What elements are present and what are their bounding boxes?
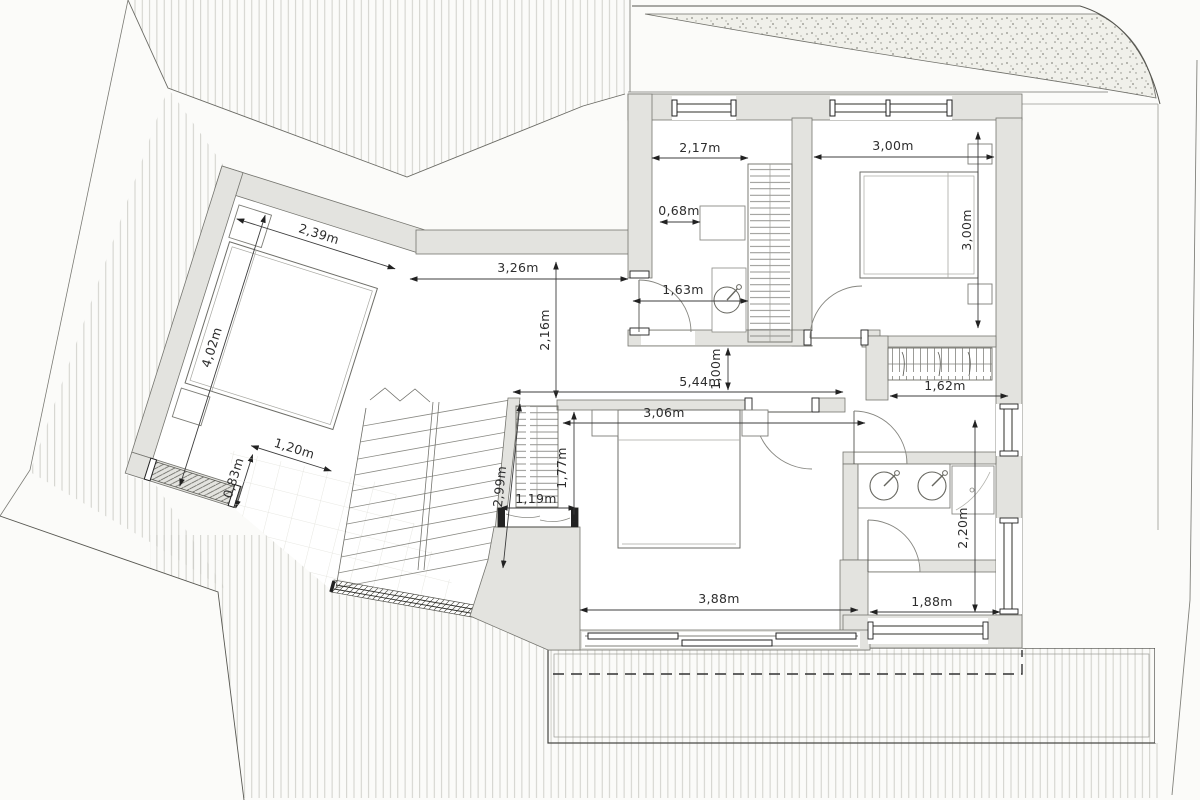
dimension-label: 3,00m [959,209,974,251]
dimension-label: 3,06m [643,405,685,420]
right-plot-lines [1022,104,1158,530]
terrace [548,648,1175,743]
right-boundary-line [1172,60,1197,795]
dimension-label: 2,20m [955,507,970,549]
bed-master-bedroom [618,410,740,548]
closet-small-bathroom [748,164,792,342]
closet-stair-landing [498,508,578,527]
window-east-1 [996,404,1022,456]
terrace-deck [548,648,1155,743]
gravel-bed [645,14,1156,98]
dimension-label: 3,00m [872,138,914,153]
dimension-label: 2,17m [679,140,721,155]
dimension-label: 2,16m [537,309,552,351]
shower [952,466,994,514]
window-north-1 [672,96,736,120]
nightstand [968,144,992,164]
nightstand [968,284,992,304]
dimension-label: 1,00m [708,348,723,390]
washbasin-small-bathroom [712,268,746,332]
dimension-label: 1,19m [515,491,557,506]
dimension-label: 3,26m [497,260,539,275]
wall-bath-west [843,464,858,560]
wall-small-bath-west [628,94,652,278]
window-east-2 [996,518,1022,614]
terrace-side-strip [1155,648,1175,743]
wall-bedroom1-west [792,118,812,346]
dimension-label: 1,63m [662,282,704,297]
dimension-label: 3,88m [698,591,740,606]
floor-plan-canvas: 2,39m 4,02m 1,20m 0,83m [0,0,1200,800]
east-yard [1022,530,1162,648]
wall-hall-north [416,230,632,254]
dimension-label: 1,77m [554,447,569,489]
dimension-label: 1,88m [911,594,953,609]
window-north-2 [830,96,952,120]
floor-plan-drawing: 2,39m 4,02m 1,20m 0,83m [0,0,1200,800]
wardrobe-hanging [888,348,992,380]
dimension-label: 1,62m [924,378,966,393]
bathroom-vanity [858,464,950,508]
wall-closet-west [866,336,888,400]
desk [700,206,745,240]
window-south-wc [868,618,988,644]
sliding-door-master [582,632,860,648]
dimension-label: 0,68m [658,203,700,218]
